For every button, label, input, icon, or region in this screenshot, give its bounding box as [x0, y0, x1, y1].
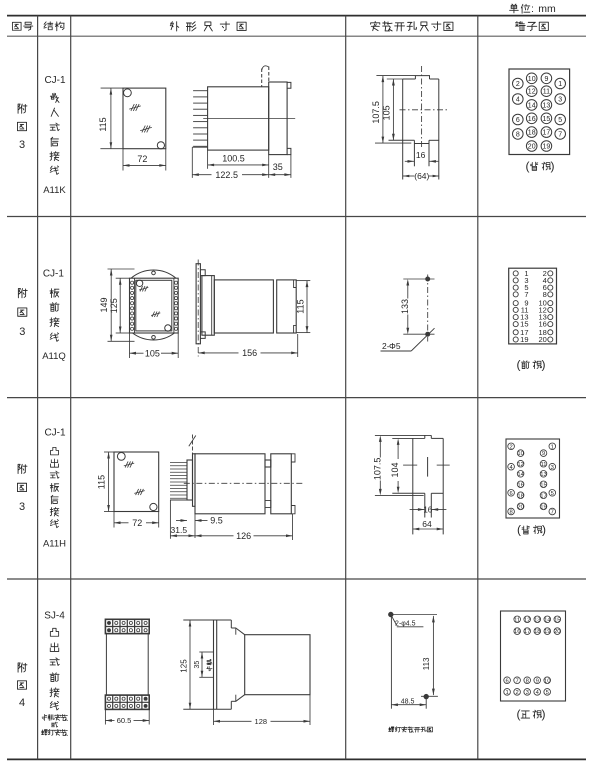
svg-text:11: 11 [540, 462, 546, 468]
svg-text:19: 19 [520, 335, 528, 344]
svg-text:105: 105 [145, 348, 160, 358]
svg-text:9: 9 [542, 451, 545, 457]
svg-text:133: 133 [400, 299, 410, 314]
svg-text:7: 7 [515, 678, 518, 684]
svg-text:4: 4 [19, 697, 25, 709]
svg-text:13: 13 [540, 472, 546, 478]
svg-text:64: 64 [422, 519, 432, 529]
svg-text:10: 10 [544, 678, 550, 684]
svg-text:19: 19 [540, 505, 546, 511]
svg-text:(: ( [517, 707, 521, 721]
svg-text:8: 8 [526, 678, 529, 684]
svg-text:(64): (64) [414, 171, 429, 181]
svg-text:16: 16 [517, 482, 523, 488]
svg-text:): ) [542, 523, 546, 537]
svg-text:): ) [551, 159, 555, 173]
svg-text:A11K: A11K [43, 185, 66, 196]
svg-text:13: 13 [534, 617, 540, 623]
svg-text:10: 10 [528, 76, 536, 83]
svg-text:18: 18 [534, 629, 540, 635]
svg-text:9.5: 9.5 [210, 515, 223, 525]
svg-text:3: 3 [19, 326, 25, 338]
svg-text:11: 11 [543, 89, 550, 96]
svg-text:3: 3 [551, 465, 554, 471]
svg-text:16: 16 [423, 505, 432, 514]
svg-text:31.5: 31.5 [171, 525, 188, 535]
svg-text:17: 17 [524, 629, 530, 635]
svg-text:): ) [542, 358, 546, 372]
svg-text:4: 4 [516, 97, 520, 104]
svg-text:14: 14 [528, 102, 536, 109]
svg-text:48.5: 48.5 [401, 699, 415, 706]
svg-text:18: 18 [517, 493, 523, 499]
svg-text:A11H: A11H [43, 538, 66, 549]
svg-text:35: 35 [194, 661, 201, 669]
svg-text:Φ5: Φ5 [389, 341, 401, 351]
svg-text:72: 72 [137, 154, 147, 164]
svg-text:122.5: 122.5 [215, 170, 238, 180]
svg-text:8: 8 [543, 290, 547, 299]
svg-text:8: 8 [509, 510, 512, 516]
svg-text:6: 6 [505, 678, 508, 684]
svg-text:11: 11 [514, 617, 520, 623]
svg-text:mm: mm [538, 3, 556, 15]
svg-text:19: 19 [543, 144, 551, 151]
svg-text:20: 20 [538, 335, 546, 344]
svg-text:7: 7 [551, 510, 554, 516]
svg-text:20: 20 [517, 505, 523, 511]
svg-text:149: 149 [99, 297, 109, 312]
svg-text:1: 1 [558, 81, 562, 88]
svg-text:2: 2 [515, 690, 518, 696]
svg-text:5: 5 [551, 491, 554, 497]
svg-text:72: 72 [132, 518, 142, 528]
svg-text:113: 113 [422, 657, 431, 670]
svg-text:115: 115 [98, 117, 108, 131]
svg-text:8: 8 [516, 131, 520, 138]
svg-text:12: 12 [528, 89, 536, 96]
svg-text:115: 115 [296, 299, 306, 313]
svg-text:17: 17 [543, 130, 551, 137]
svg-text:20: 20 [554, 629, 560, 635]
svg-text:125: 125 [109, 298, 119, 313]
svg-text:14: 14 [544, 617, 551, 623]
svg-text:16: 16 [514, 629, 520, 635]
svg-text:6: 6 [516, 117, 520, 124]
svg-text:A11Q: A11Q [42, 351, 66, 362]
svg-text:2-φ4.5: 2-φ4.5 [395, 621, 416, 628]
svg-text:156: 156 [242, 348, 257, 358]
svg-text:15: 15 [554, 617, 560, 623]
svg-text:7: 7 [558, 131, 562, 138]
svg-text:60.5: 60.5 [117, 716, 132, 725]
svg-text:1: 1 [551, 444, 554, 450]
svg-text:126: 126 [236, 531, 251, 541]
svg-text:12: 12 [524, 617, 530, 623]
svg-text:107.5: 107.5 [371, 101, 381, 124]
svg-text:17: 17 [540, 493, 546, 499]
svg-text:18: 18 [528, 130, 536, 137]
svg-text:5: 5 [546, 690, 549, 696]
svg-text:107.5: 107.5 [372, 458, 382, 481]
svg-text::: : [531, 4, 534, 15]
svg-text:2: 2 [509, 444, 512, 450]
svg-text:105: 105 [381, 105, 391, 120]
svg-text:13: 13 [543, 102, 551, 109]
svg-text:5: 5 [558, 117, 562, 124]
svg-text:128: 128 [255, 717, 268, 726]
svg-text:CJ-1: CJ-1 [44, 75, 66, 86]
svg-text:3: 3 [19, 139, 25, 151]
svg-text:20: 20 [528, 144, 536, 151]
svg-text:CJ-1: CJ-1 [43, 269, 65, 280]
svg-text:104: 104 [390, 462, 400, 477]
svg-text:9: 9 [544, 76, 548, 83]
svg-text:115: 115 [96, 475, 106, 489]
svg-text:19: 19 [544, 629, 550, 635]
svg-text:16: 16 [416, 150, 426, 160]
svg-text:15: 15 [540, 482, 546, 488]
svg-text:CJ-1: CJ-1 [44, 427, 66, 438]
svg-text:(: ( [526, 159, 530, 173]
svg-text:7: 7 [524, 290, 528, 299]
svg-text:3: 3 [558, 97, 562, 104]
svg-text:14: 14 [517, 472, 524, 478]
svg-text:(: ( [517, 523, 521, 537]
svg-text:15: 15 [543, 116, 551, 123]
svg-text:3: 3 [19, 501, 25, 513]
svg-text:12: 12 [517, 462, 523, 468]
svg-text:3: 3 [526, 690, 529, 696]
svg-text:(: ( [517, 358, 521, 372]
svg-text:1: 1 [505, 690, 508, 696]
svg-text:10: 10 [517, 451, 523, 457]
svg-text:2: 2 [516, 81, 520, 88]
svg-text:100.5: 100.5 [222, 154, 245, 164]
svg-text:): ) [542, 707, 546, 721]
svg-text:6: 6 [509, 491, 512, 497]
svg-text:125: 125 [179, 659, 188, 673]
svg-text:16: 16 [528, 116, 536, 123]
svg-text:SJ-4: SJ-4 [44, 610, 65, 621]
svg-text:9: 9 [536, 678, 539, 684]
svg-text:35: 35 [273, 162, 283, 172]
